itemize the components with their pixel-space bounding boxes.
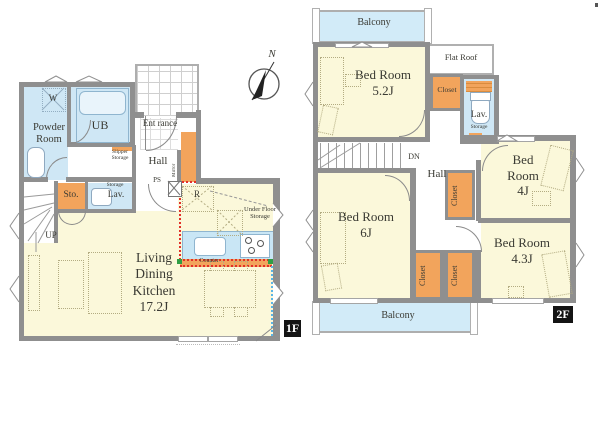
ldk-name: Living Dining Kitchen	[133, 250, 176, 298]
bedroom43j-label: Bed Room 4.3J	[494, 235, 550, 266]
artifact-dot	[595, 3, 598, 7]
floor1-badge: 1F	[284, 320, 301, 337]
washer-label: W	[44, 93, 62, 103]
compass-icon	[249, 62, 279, 100]
bedroom4j-label: Bed Room 4J	[497, 152, 549, 199]
balcony-top-label: Balcony	[338, 17, 410, 29]
ldk-size: 17.2J	[140, 299, 169, 314]
powder-room-label: Powder Room	[22, 122, 76, 146]
up-label: UP	[38, 230, 64, 240]
bedroom6j-label: Bed Room 6J	[338, 209, 394, 240]
compass-n-label: N	[264, 48, 280, 61]
leader-line	[256, 325, 276, 341]
lav2-storage-label: Storage	[463, 124, 495, 130]
entrance-label: Ent rance	[142, 118, 178, 128]
unit-bath-label: UB	[84, 119, 116, 133]
bedroom4j-size: 4J	[517, 183, 529, 198]
stairs-2f-lines	[318, 143, 360, 168]
floorplan-canvas: N Powder Room W UB Ent rance Hall Slippe…	[0, 0, 600, 423]
floor2-badge: 2F	[553, 306, 573, 323]
ldk-label: Living Dining Kitchen 17.2J	[126, 250, 182, 316]
lav-label: Lav.	[102, 190, 130, 201]
bedroom52-size: 5.2J	[372, 83, 393, 98]
bedroom4j-name: Bed Room	[507, 152, 539, 183]
under-floor-storage-label: Under Floor Storage	[240, 206, 280, 221]
dn-label: DN	[403, 152, 425, 161]
closet6j-b-label: Closet	[450, 255, 470, 297]
lav2-label: Lav.	[463, 110, 495, 121]
storage-room-label: Sto.	[56, 190, 86, 201]
bedroom52-label: Bed Room 5.2J	[352, 67, 414, 98]
closet52-label: Closet	[432, 86, 462, 95]
closet4j-label: Closet	[450, 174, 470, 217]
bedroom52-name: Bed Room	[355, 67, 411, 82]
fridge-label: R	[190, 189, 204, 199]
closet6j-a-label: Closet	[418, 255, 438, 297]
under-floor-storage-x	[217, 210, 241, 234]
flat-roof-label: Flat Roof	[430, 53, 492, 63]
bedroom43j-name: Bed Room	[494, 235, 550, 250]
leader-line	[210, 191, 268, 206]
balcony-bottom-label: Balcony	[356, 310, 440, 322]
linework-layer	[0, 0, 600, 423]
bedroom6j-name: Bed Room	[338, 209, 394, 224]
mirror-label: Mirror	[172, 155, 181, 185]
lav-storage-label: Storage	[100, 182, 130, 188]
bedroom6j-size: 6J	[360, 225, 372, 240]
slipper-storage-label: Slipper Storage	[105, 149, 135, 162]
bedroom43j-size: 4.3J	[511, 251, 532, 266]
stairs-1f-lines	[24, 194, 54, 252]
hall-label: Hall	[140, 155, 176, 168]
counter-label: Counter	[192, 258, 226, 265]
ps-label: PS	[149, 176, 165, 184]
